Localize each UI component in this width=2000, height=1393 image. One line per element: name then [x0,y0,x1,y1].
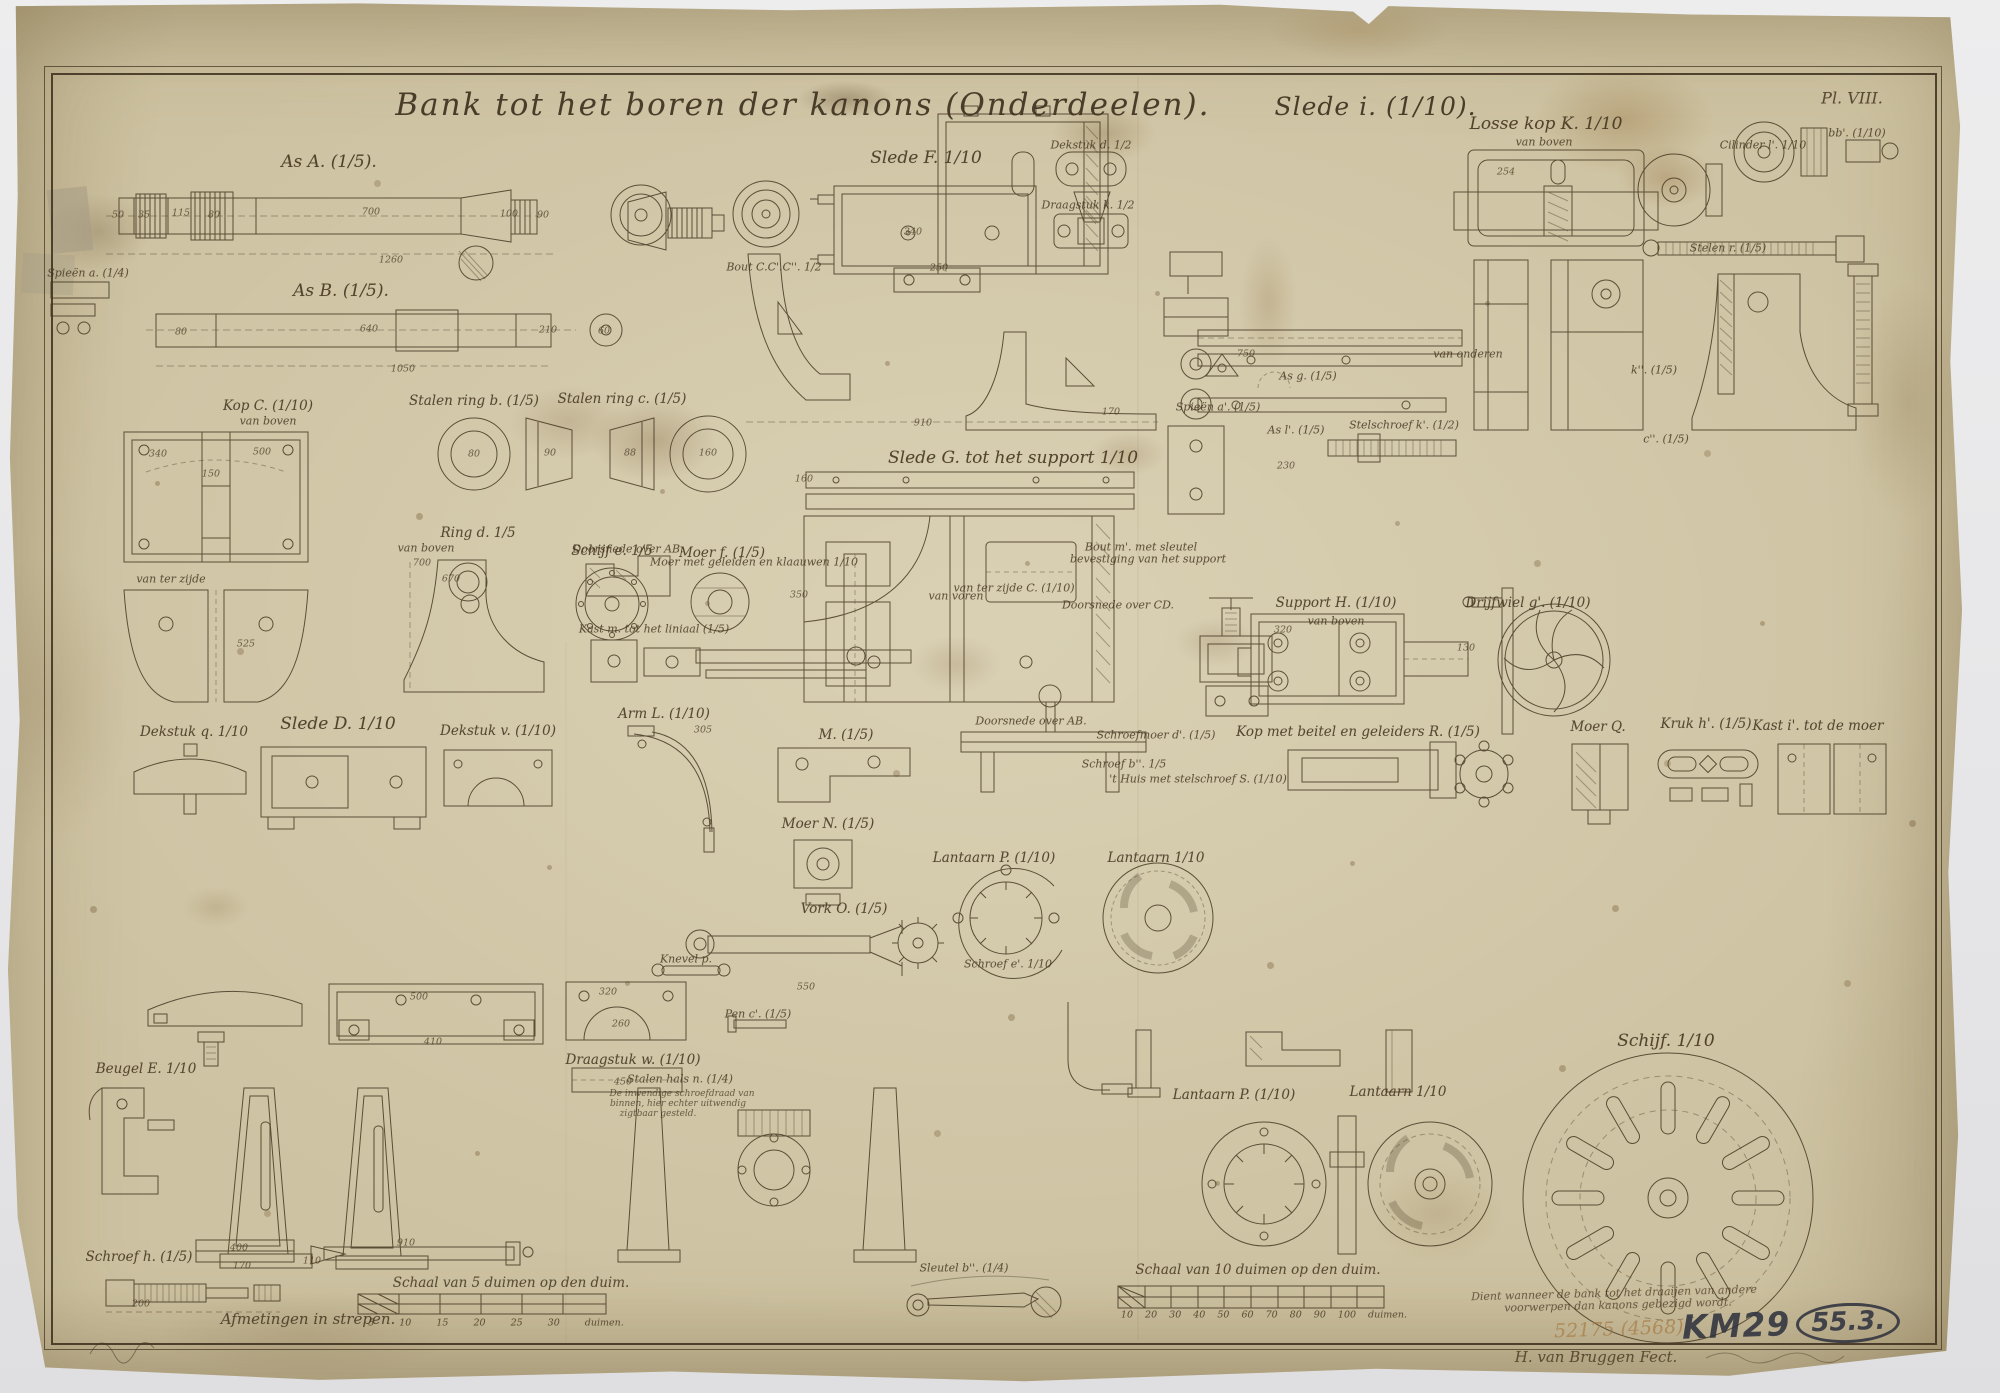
figure-label: c''. (1/5) [1643,433,1689,446]
plate-number: Pl. VIII. [1821,89,1883,108]
figure-label: Spieën a'. (1/5) [1176,401,1261,414]
figure-label: As g. (1/5) [1279,370,1336,383]
figure-label: Stalen hals n. (1/4) [627,1073,733,1086]
figure-label: Dekstuk q. 1/10 [140,724,248,740]
scale-left-ticks: 5 10 15 20 25 30 duimen. [368,1318,624,1329]
figure-label: Moer N. (1/5) [782,816,874,832]
figure-label: Ring d. 1/5 [440,525,515,541]
dimension-label: 110 [303,1256,321,1267]
maker-signature: H. van Bruggen Fect. [1515,1348,1678,1366]
dimension-label: 254 [1497,167,1515,178]
figure-label: Vork O. (1/5) [801,901,888,917]
figure-label: Stalen ring c. (1/5) [558,391,687,407]
figure-label: Doorsnede over CD. [1062,599,1174,612]
dimension-label: 250 [930,263,948,274]
figure-label: Slede D. 1/10 [280,714,396,734]
figure-label: Knevel p. [660,953,712,966]
figure-label: M. (1/5) [819,727,874,743]
figure-label: Slede F. 1/10 [870,148,982,168]
dimension-label: 130 [1457,643,1475,654]
figure-label: Doorsnede over AB. [975,715,1086,728]
stamp-circled-number: 55.3. [1796,1301,1901,1345]
dimension-label: 400 [230,1243,248,1254]
dimension-label: 750 [1237,349,1255,360]
dimension-label: 1260 [379,255,403,266]
dimension-label: 500 [410,992,428,1003]
dimension-label: 90 [537,210,549,221]
figure-label: As B. (1/5). [293,281,389,301]
figure-label: Stelschroef k'. (1/2) [1349,419,1459,432]
figure-label: van boven [398,542,455,555]
dimension-label: 910 [914,418,932,429]
dimension-label: 230 [1277,461,1295,472]
scale-right-ticks: 10 20 30 40 50 60 70 80 90 100 duimen. [1121,1310,1407,1321]
drawing-sheet: Bank tot het boren der kanons (Onderdeel… [6,2,1964,1384]
figure-label: Draagstuk k. 1/2 [1042,199,1135,212]
plate-title-main: Bank tot het boren der kanons (Onderdeel… [395,87,1210,123]
figure-label: Support H. (1/10) [1276,595,1397,611]
figure-label: Slede G. tot het support 1/10 [888,448,1138,468]
figure-label: Lantaarn 1/10 [1108,850,1205,866]
figure-label: Drijfwiel g'. (1/10) [1465,595,1590,611]
figure-label: Kruk h'. (1/5) [1661,716,1752,732]
figure-label: van onderen [1433,348,1502,361]
dimension-label: 340 [904,227,922,238]
stamp-code: KM29 [1681,1304,1791,1347]
dimension-label: 100 [500,209,518,220]
dimension-label: 320 [599,987,617,998]
figure-label: Cilinder l'. 1/10 [1720,139,1807,152]
figure-label: Schijf. 1/10 [1617,1031,1715,1051]
dimension-label: 200 [132,1299,150,1310]
plate-title: Bank tot het boren der kanons (Onderdeel… [395,87,1476,123]
scale-right-caption: Schaal van 10 duimen op den duim. [1135,1262,1380,1278]
dimension-label: 525 [237,639,255,650]
dimension-label: 80 [468,449,480,460]
dimension-label: 170 [1102,407,1120,418]
figure-label: Doorsnede over AB. [572,543,683,556]
dimension-label: 640 [360,324,378,335]
dimension-label: 60 [598,326,610,337]
figure-label: As A. (1/5). [281,152,377,172]
dimension-label: 50 [112,210,124,221]
figure-label: bb'. (1/10) [1828,127,1885,140]
figure-label: Kop met beitel en geleiders R. (1/5) [1236,724,1480,740]
dimension-label: 305 [694,725,712,736]
figure-label: van boven [1516,136,1573,149]
accession-stamp: KM2955.3. [1681,1300,1901,1349]
figure-label: Schroef e'. 1/10 [964,958,1052,971]
figure-label: Dekstuk d. 1/2 [1050,139,1131,152]
figure-label: Moer Q. [1570,719,1625,735]
figure-label: bevestiging van het support [1070,553,1226,566]
dimension-label: 550 [797,982,815,993]
scan-backdrop: Bank tot het boren der kanons (Onderdeel… [0,0,2000,1393]
figure-label: Sleutel b''. (1/4) [920,1262,1009,1275]
dimension-label: 670 [442,574,460,585]
dimension-label: 910 [397,1238,415,1249]
dimension-label: 160 [699,448,717,459]
figure-label: van voren [928,590,983,603]
figure-label: Kop C. (1/10) [223,398,313,414]
figure-label: Schroefmoer d'. (1/5) [1097,729,1216,742]
dimension-label: 500 [253,447,271,458]
dimension-label: 450 [614,1077,632,1088]
figure-label: Schroef b''. 1/5 [1082,758,1167,771]
dimension-label: 160 [795,474,813,485]
signature-flourish [1706,1353,1844,1363]
figure-label: Bout C.C'.C''. 1/2 [726,261,821,274]
figure-label: As l'. (1/5) [1268,424,1325,437]
dimension-label: 340 [149,449,167,460]
figure-label: 't Huis met stelschroef S. (1/10) [1109,773,1287,786]
figure-label: Stalen ring b. (1/5) [409,393,539,409]
plate-title-suffix: Slede i. (1/10). [1274,92,1476,121]
figure-label: Dekstuk v. (1/10) [440,723,556,739]
dimension-label: 1050 [391,364,415,375]
figure-label: Stelen r. (1/5) [1690,242,1766,255]
figure-label: Schroef h. (1/5) [86,1249,193,1265]
figure-label: Moer met geleiden en klaauwen 1/10 [650,556,858,569]
figure-label: Lantaarn P. (1/10) [1173,1087,1295,1103]
dimension-label: 410 [424,1037,442,1048]
dimension-label: 700 [362,207,380,218]
dimension-label: 170 [233,1261,251,1272]
dimension-label: 90 [544,448,556,459]
figure-label: Lantaarn P. (1/10) [933,850,1055,866]
dimension-label: 150 [202,469,220,480]
dimension-label: 320 [1274,625,1292,636]
figure-label: Beugel E. 1/10 [96,1061,197,1077]
figure-label: Losse kop K. 1/10 [1470,114,1623,134]
dimension-label: 88 [624,448,636,459]
figure-label: van boven [1308,615,1365,628]
figure-label: Draagstuk w. (1/10) [566,1052,701,1068]
dimension-label: 700 [413,558,431,569]
plate-border-inner [51,73,1937,1345]
figure-label: van ter zijde [136,573,205,586]
figure-label: Kast m. tot het liniaal (1/5) [579,623,729,636]
scale-left-caption: Schaal van 5 duimen op den duim. [393,1275,630,1291]
figure-label: zigtbaar gesteld. [620,1109,697,1119]
figure-label: Spieën a. (1/4) [47,267,129,280]
figure-label: binnen, hier echter uitwendig [610,1099,746,1109]
figure-label: Lantaarn 1/10 [1350,1084,1447,1100]
dimension-label: 350 [790,590,808,601]
dimension-label: 80 [208,210,220,221]
dimension-label: 210 [539,325,557,336]
dimension-label: 80 [175,327,187,338]
dimension-label: 35 [138,210,150,221]
foxing-speckles [6,2,9,5]
dimension-label: 115 [172,208,190,219]
figure-label: Arm L. (1/10) [618,706,710,722]
figure-label: Pen c'. (1/5) [725,1008,791,1021]
figure-label: De inwendige schroefdraad van [610,1089,755,1099]
figure-label: van boven [240,415,297,428]
figure-label: Kast i'. tot de moer [1753,718,1884,734]
dimension-label: 260 [612,1019,630,1030]
figure-label: k''. (1/5) [1631,364,1677,377]
